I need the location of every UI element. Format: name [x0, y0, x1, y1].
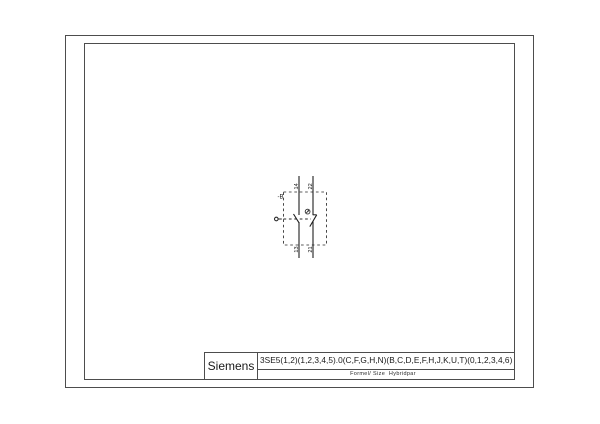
svg-text:22: 22: [308, 183, 314, 189]
svg-text:21: 21: [308, 246, 314, 252]
svg-text:-B: -B: [278, 195, 284, 201]
svg-text:13: 13: [294, 246, 300, 252]
svg-text:14: 14: [294, 183, 300, 189]
